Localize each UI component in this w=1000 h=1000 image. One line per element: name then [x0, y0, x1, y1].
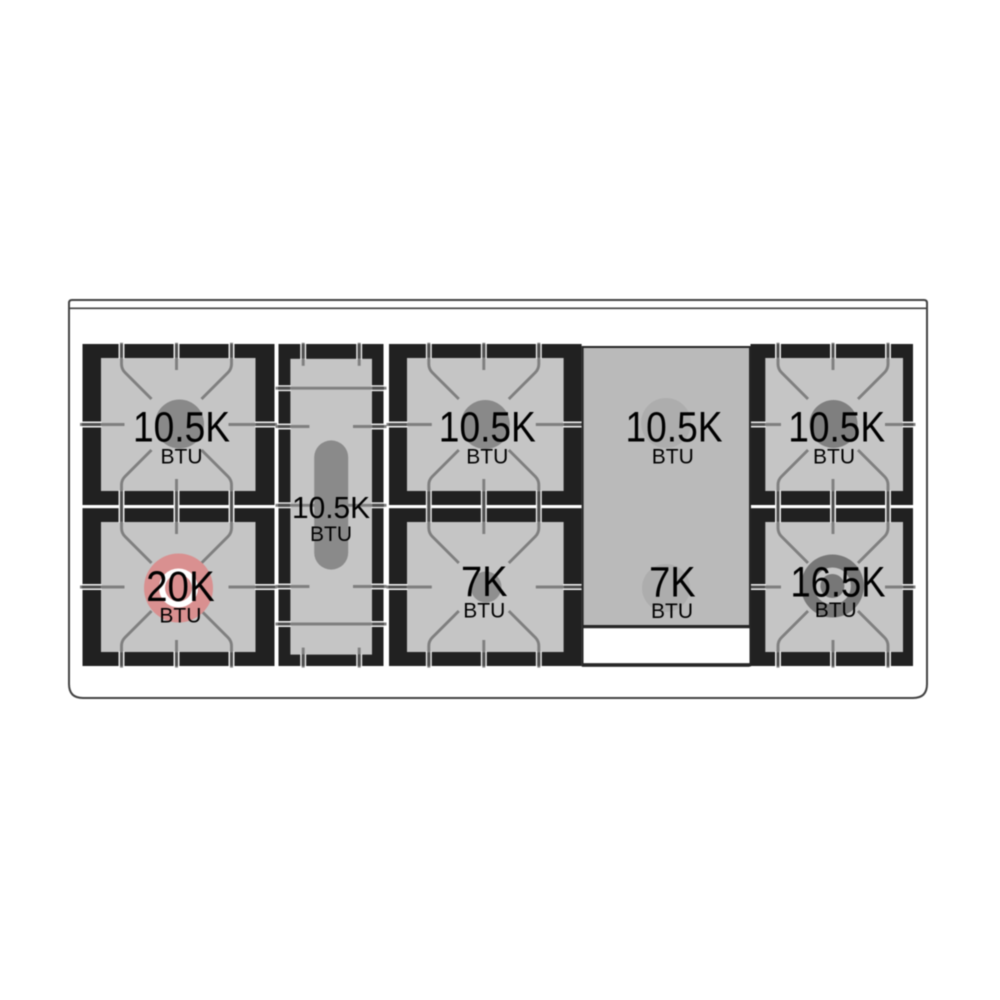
- svg-text:BTU: BTU: [813, 446, 855, 469]
- svg-text:10.5K: 10.5K: [439, 403, 536, 451]
- svg-text:BTU: BTU: [159, 604, 201, 627]
- svg-text:10.5K: 10.5K: [788, 403, 885, 451]
- svg-text:BTU: BTU: [651, 600, 693, 623]
- svg-text:BTU: BTU: [463, 599, 505, 622]
- svg-text:10.5K: 10.5K: [133, 403, 230, 451]
- svg-text:BTU: BTU: [310, 523, 352, 546]
- svg-text:10.5K: 10.5K: [292, 490, 370, 525]
- svg-text:BTU: BTU: [161, 446, 203, 469]
- svg-text:10.5K: 10.5K: [626, 403, 723, 451]
- svg-text:BTU: BTU: [815, 599, 857, 622]
- svg-text:BTU: BTU: [466, 446, 508, 469]
- svg-text:BTU: BTU: [652, 446, 694, 469]
